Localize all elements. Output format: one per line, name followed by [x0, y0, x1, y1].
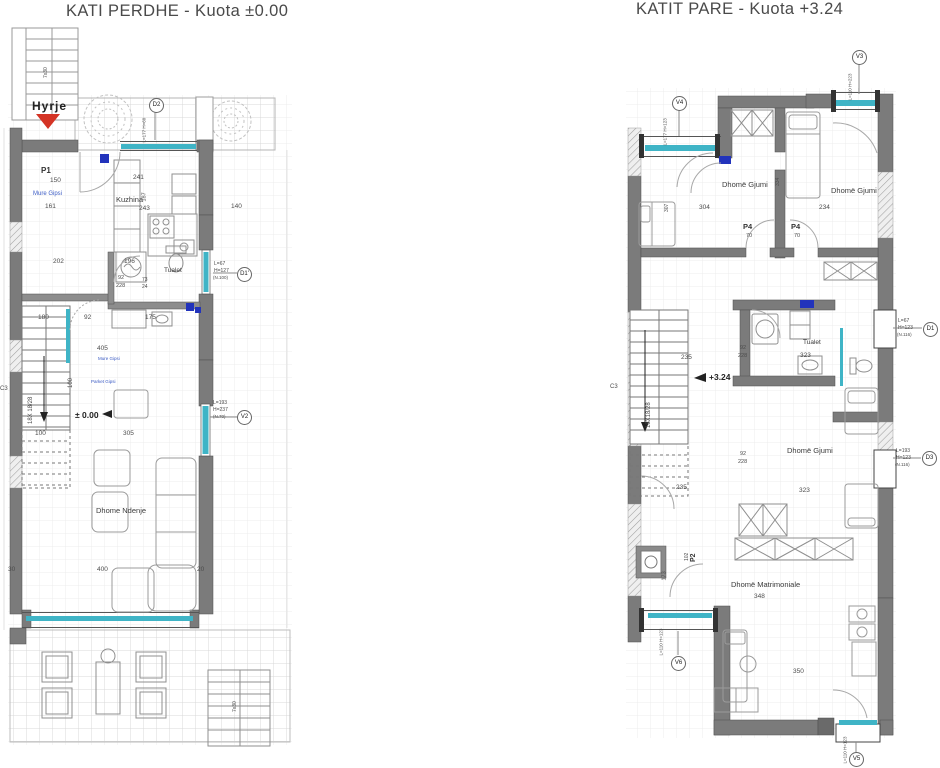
front-terrace — [75, 98, 275, 150]
shower — [636, 546, 666, 578]
plan-linework — [0, 0, 940, 768]
left-floor-plan — [4, 28, 292, 746]
floor-plan-sheet: KATI PERDHE - Kuota ±0.00 Hyrje Mure Gip… — [0, 0, 940, 768]
exterior-stair — [12, 28, 78, 120]
right-floor-plan — [626, 64, 922, 752]
terrace-paving — [10, 630, 290, 742]
